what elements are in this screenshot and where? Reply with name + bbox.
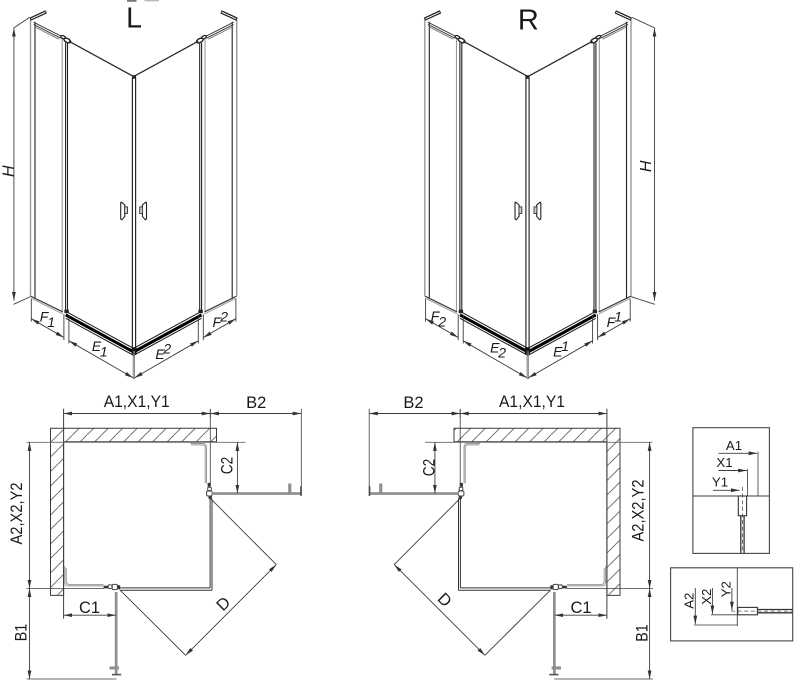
svg-text:C1: C1 <box>570 599 591 617</box>
svg-text:A2: A2 <box>681 593 696 609</box>
svg-text:R: R <box>518 4 539 36</box>
svg-text:A2,X2,Y2: A2,X2,Y2 <box>629 480 647 542</box>
svg-text:2: 2 <box>497 345 506 361</box>
svg-text:A1,X1,Y1: A1,X1,Y1 <box>104 393 170 411</box>
svg-text:C1: C1 <box>79 599 100 617</box>
svg-text:C2: C2 <box>219 457 237 475</box>
svg-text:L: L <box>126 2 142 34</box>
svg-text:Y1: Y1 <box>712 475 728 490</box>
svg-text:2: 2 <box>219 309 228 325</box>
svg-text:1: 1 <box>614 309 622 325</box>
svg-text:2: 2 <box>437 314 446 330</box>
svg-text:B1: B1 <box>13 624 31 642</box>
svg-text:A1: A1 <box>726 438 742 453</box>
svg-text:1: 1 <box>561 338 569 354</box>
svg-text:C2: C2 <box>420 459 438 477</box>
svg-text:B2: B2 <box>403 394 423 412</box>
svg-text:X2: X2 <box>699 589 714 605</box>
svg-text:B2: B2 <box>246 394 266 412</box>
svg-text:A2,X2,Y2: A2,X2,Y2 <box>8 483 26 545</box>
svg-text:2: 2 <box>162 341 171 357</box>
svg-text:H: H <box>638 160 655 172</box>
svg-text:B1: B1 <box>633 624 651 642</box>
svg-text:1: 1 <box>100 344 108 360</box>
svg-text:Y2: Y2 <box>719 581 734 597</box>
svg-text:H: H <box>0 165 17 177</box>
svg-text:A1,X1,Y1: A1,X1,Y1 <box>499 393 565 411</box>
svg-text:1: 1 <box>47 314 55 330</box>
svg-text:X1: X1 <box>716 455 732 470</box>
